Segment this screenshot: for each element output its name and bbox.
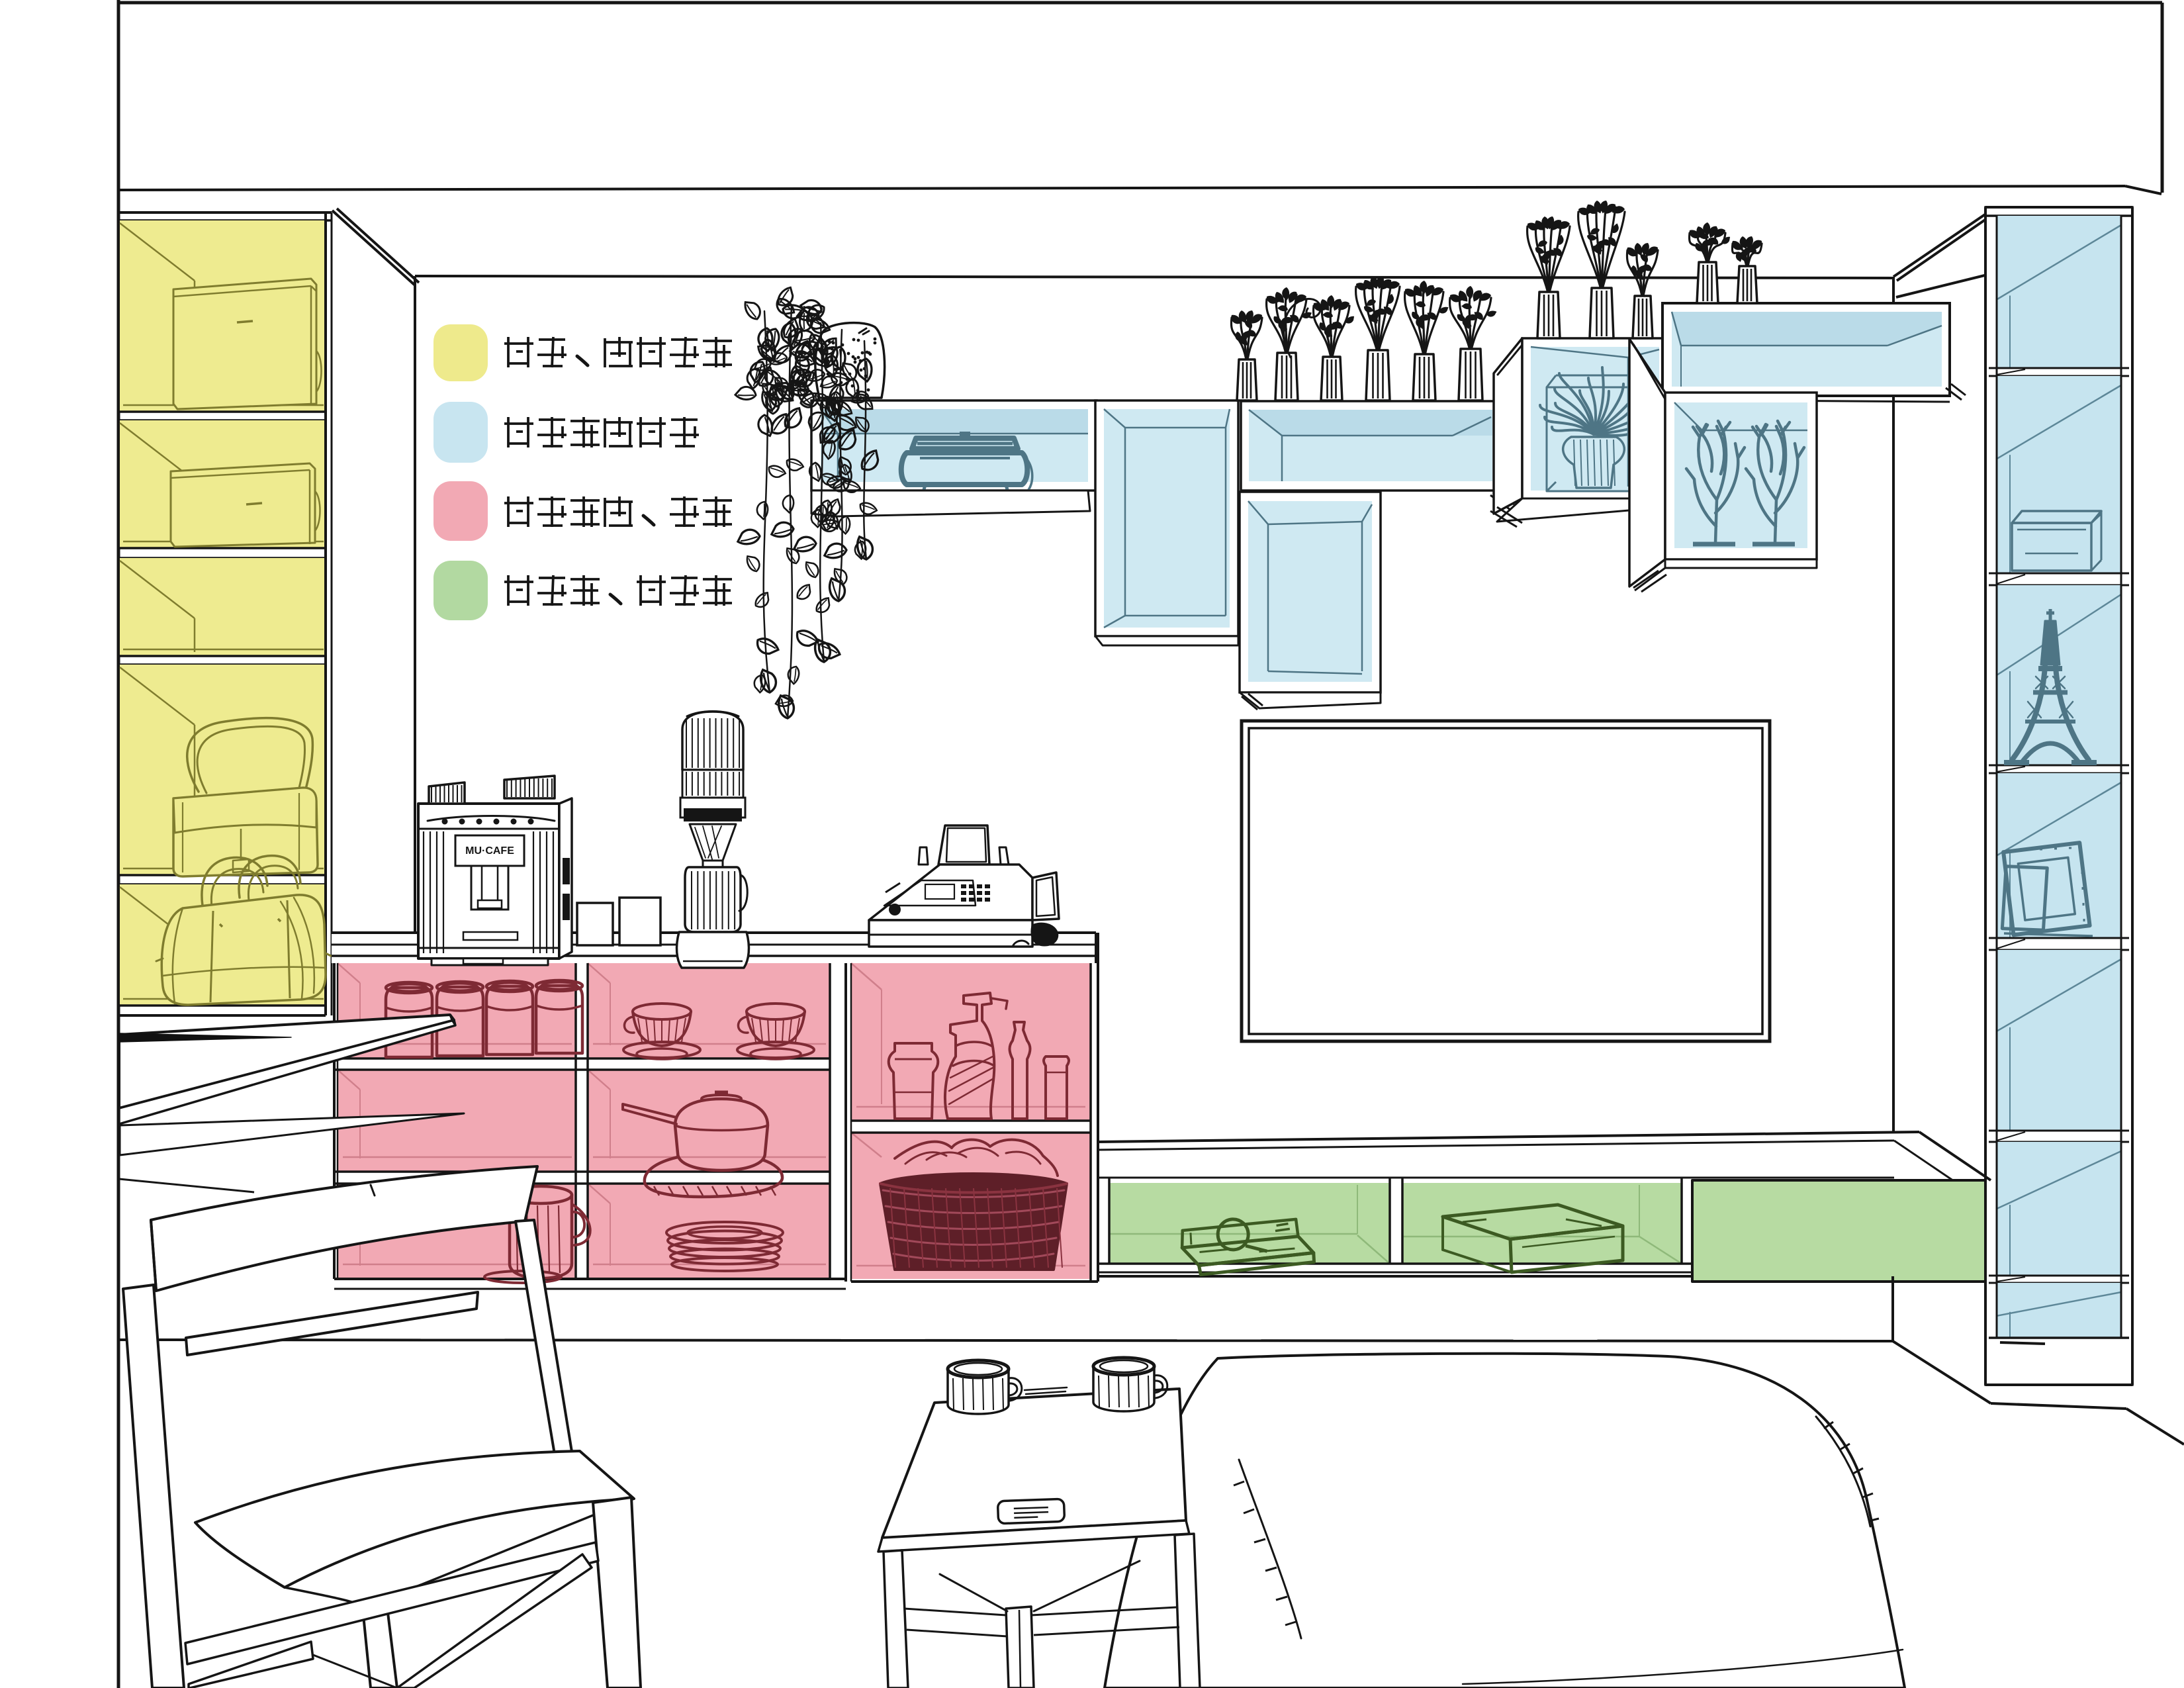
svg-text:MU·CAFE: MU·CAFE [465,845,514,857]
